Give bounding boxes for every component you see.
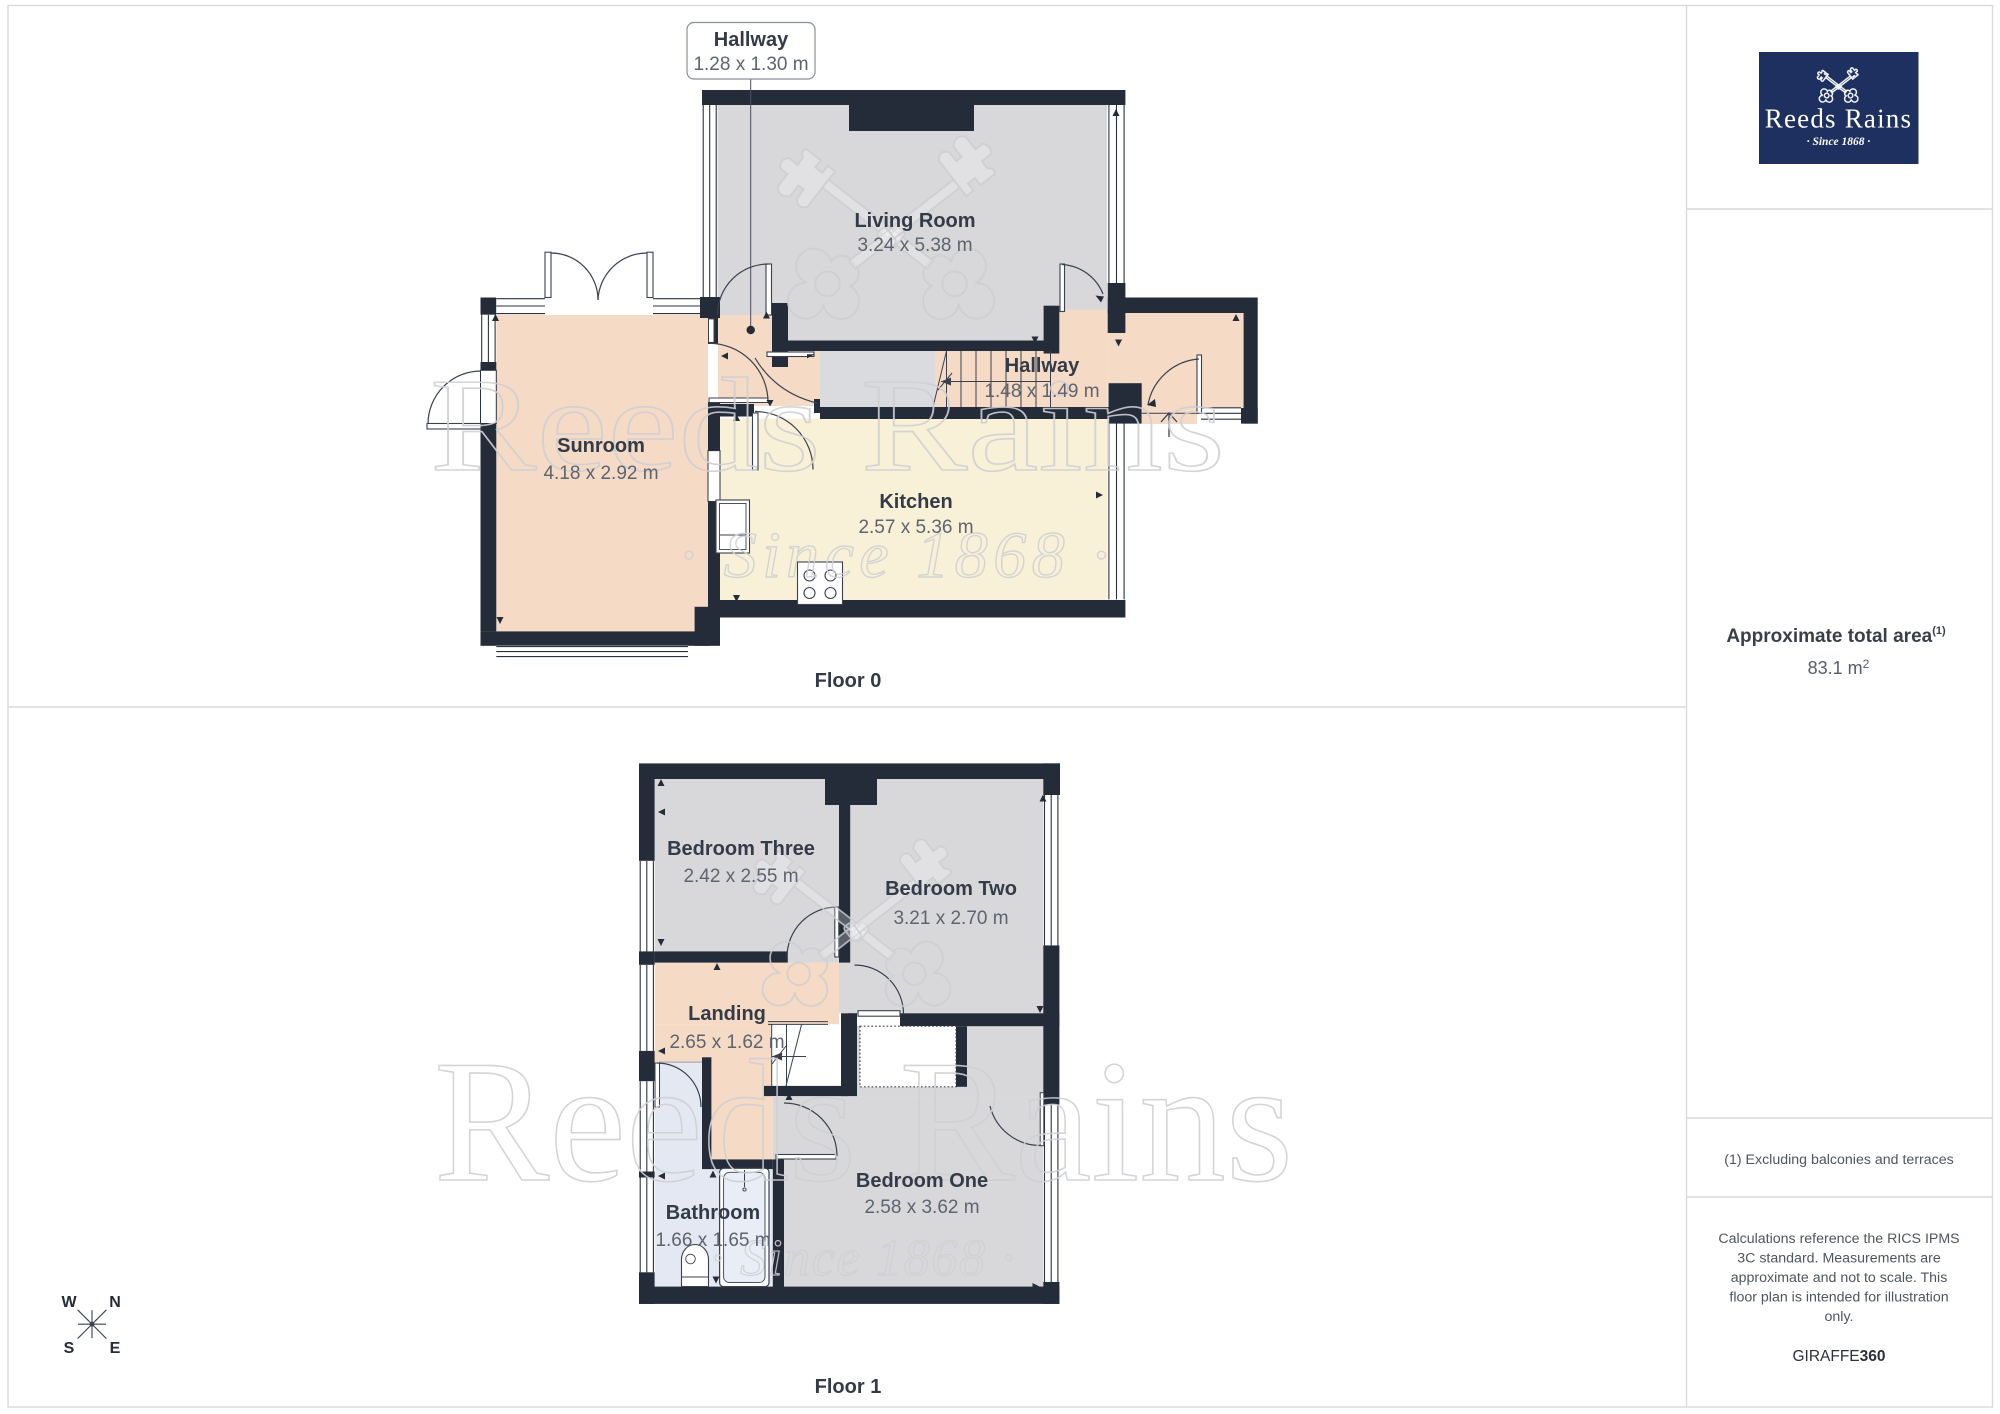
svg-text:Hallway: Hallway [1005, 355, 1080, 377]
svg-text:S: S [64, 1340, 75, 1357]
svg-text:Bedroom One: Bedroom One [856, 1170, 988, 1192]
svg-text:1.66 x 1.65 m: 1.66 x 1.65 m [655, 1230, 770, 1251]
svg-text:3C standard. Measurements are: 3C standard. Measurements are [1737, 1251, 1941, 1267]
svg-text:1.48 x 1.49 m: 1.48 x 1.49 m [984, 381, 1099, 402]
svg-text:3.24 x 5.38 m: 3.24 x 5.38 m [857, 235, 972, 256]
svg-text:Bathroom: Bathroom [666, 1202, 760, 1224]
svg-text:only.: only. [1825, 1309, 1854, 1325]
svg-text:2.58 x 3.62 m: 2.58 x 3.62 m [864, 1197, 979, 1218]
svg-text:Approximate total area(1): Approximate total area(1) [1726, 625, 1946, 647]
svg-text:W: W [61, 1294, 77, 1311]
svg-text:Hallway: Hallway [714, 29, 789, 51]
svg-text:E: E [110, 1340, 121, 1357]
svg-text:Landing: Landing [688, 1003, 766, 1025]
svg-text:GIRAFFE360: GIRAFFE360 [1792, 1348, 1885, 1365]
svg-text:4.18 x 2.92 m: 4.18 x 2.92 m [543, 463, 658, 484]
svg-text:3.21 x 2.70 m: 3.21 x 2.70 m [893, 908, 1008, 929]
svg-text:· Since 1868 ·: · Since 1868 · [1807, 136, 1871, 148]
svg-text:(1) Excluding balconies and te: (1) Excluding balconies and terraces [1724, 1152, 1954, 1168]
svg-text:Calculations reference the RIC: Calculations reference the RICS IPMS [1718, 1231, 1959, 1247]
svg-text:2.57 x 5.36 m: 2.57 x 5.36 m [858, 517, 973, 538]
svg-text:N: N [109, 1294, 121, 1311]
svg-text:approximate and not to scale.: approximate and not to scale. This [1731, 1270, 1948, 1286]
svg-text:floor plan is intended for ill: floor plan is intended for illustration [1729, 1290, 1948, 1306]
svg-text:Living Room: Living Room [854, 210, 975, 232]
svg-text:Sunroom: Sunroom [557, 435, 645, 457]
svg-text:Bedroom Three: Bedroom Three [667, 838, 815, 860]
svg-text:2.65 x 1.62 m: 2.65 x 1.62 m [669, 1032, 784, 1053]
svg-text:83.1 m2: 83.1 m2 [1808, 657, 1870, 678]
svg-text:Kitchen: Kitchen [879, 491, 952, 513]
svg-text:2.42 x 2.55 m: 2.42 x 2.55 m [683, 866, 798, 887]
svg-text:Floor 1: Floor 1 [815, 1376, 882, 1398]
svg-text:Floor 0: Floor 0 [815, 670, 882, 692]
svg-text:Bedroom Two: Bedroom Two [885, 878, 1017, 900]
svg-text:1.28 x 1.30 m: 1.28 x 1.30 m [693, 54, 808, 75]
svg-text:Reeds Rains: Reeds Rains [1765, 104, 1912, 134]
